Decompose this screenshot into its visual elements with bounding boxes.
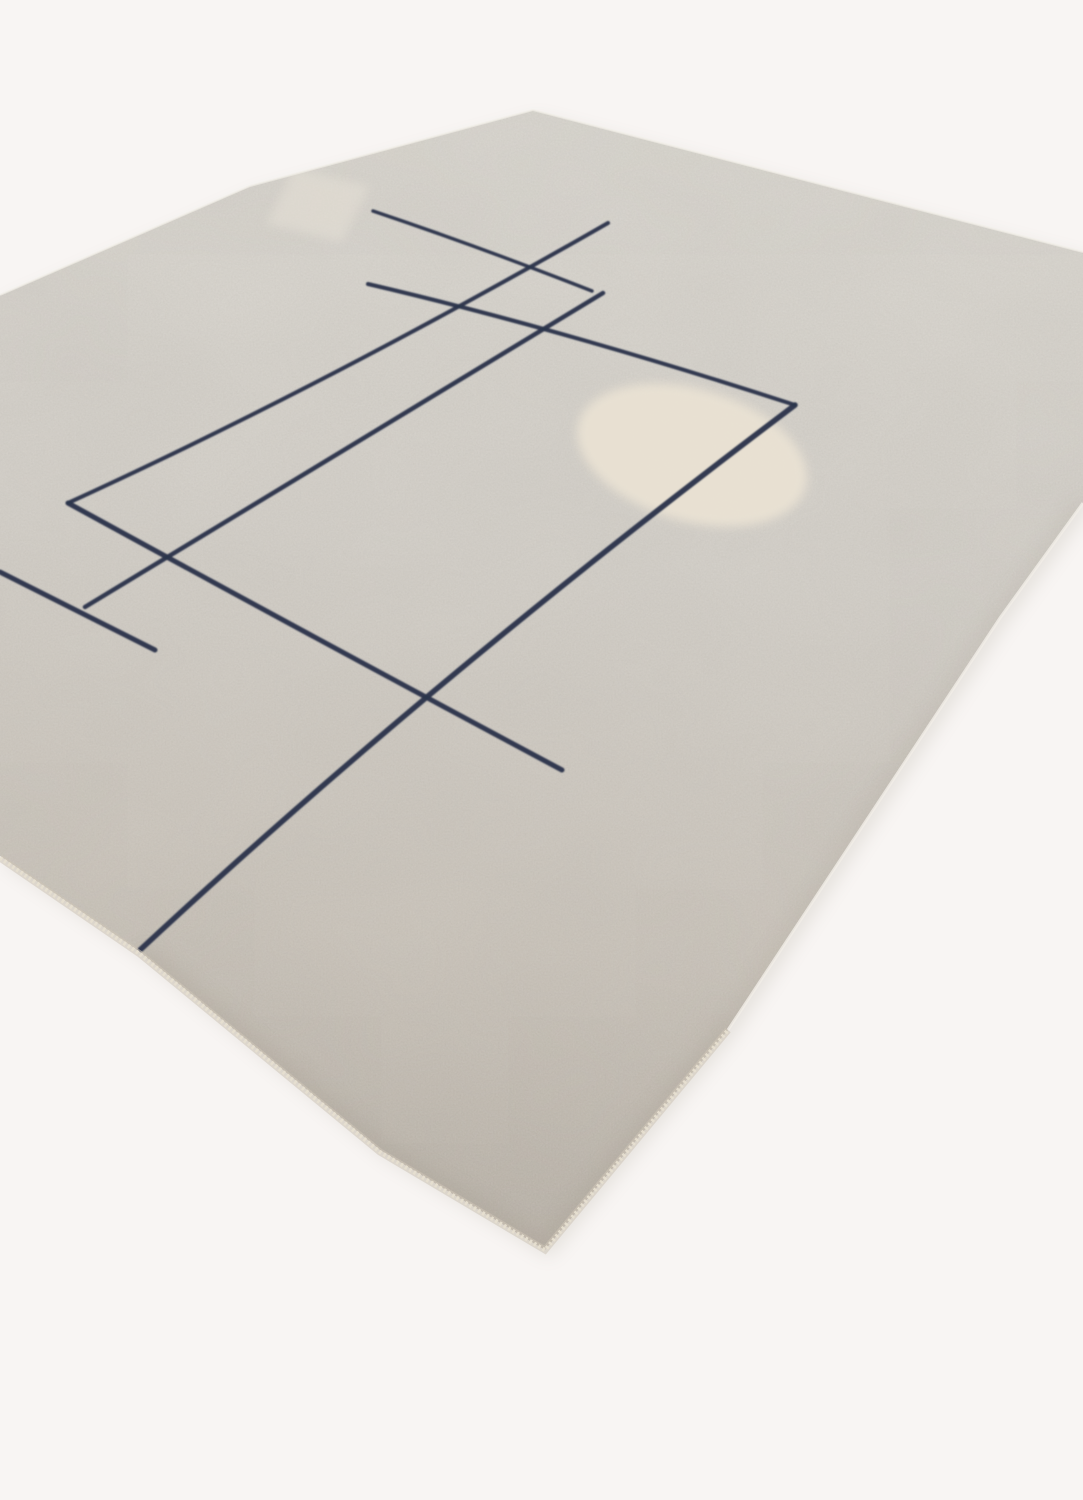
product-photo-stage [0, 0, 1083, 1500]
rug-photo-svg [0, 0, 1083, 1500]
